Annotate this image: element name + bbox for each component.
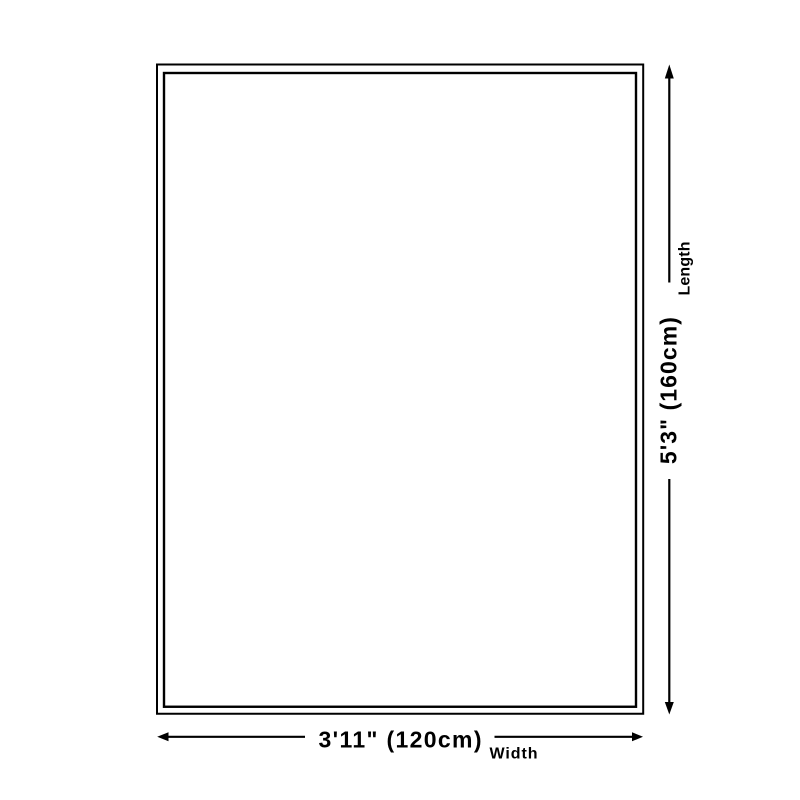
svg-text:3'11" (120cm): 3'11" (120cm) [319, 726, 482, 752]
svg-text:5'3" (160cm): 5'3" (160cm) [656, 317, 682, 464]
svg-text:Width: Width [490, 746, 538, 763]
svg-text:Length: Length [677, 242, 694, 296]
